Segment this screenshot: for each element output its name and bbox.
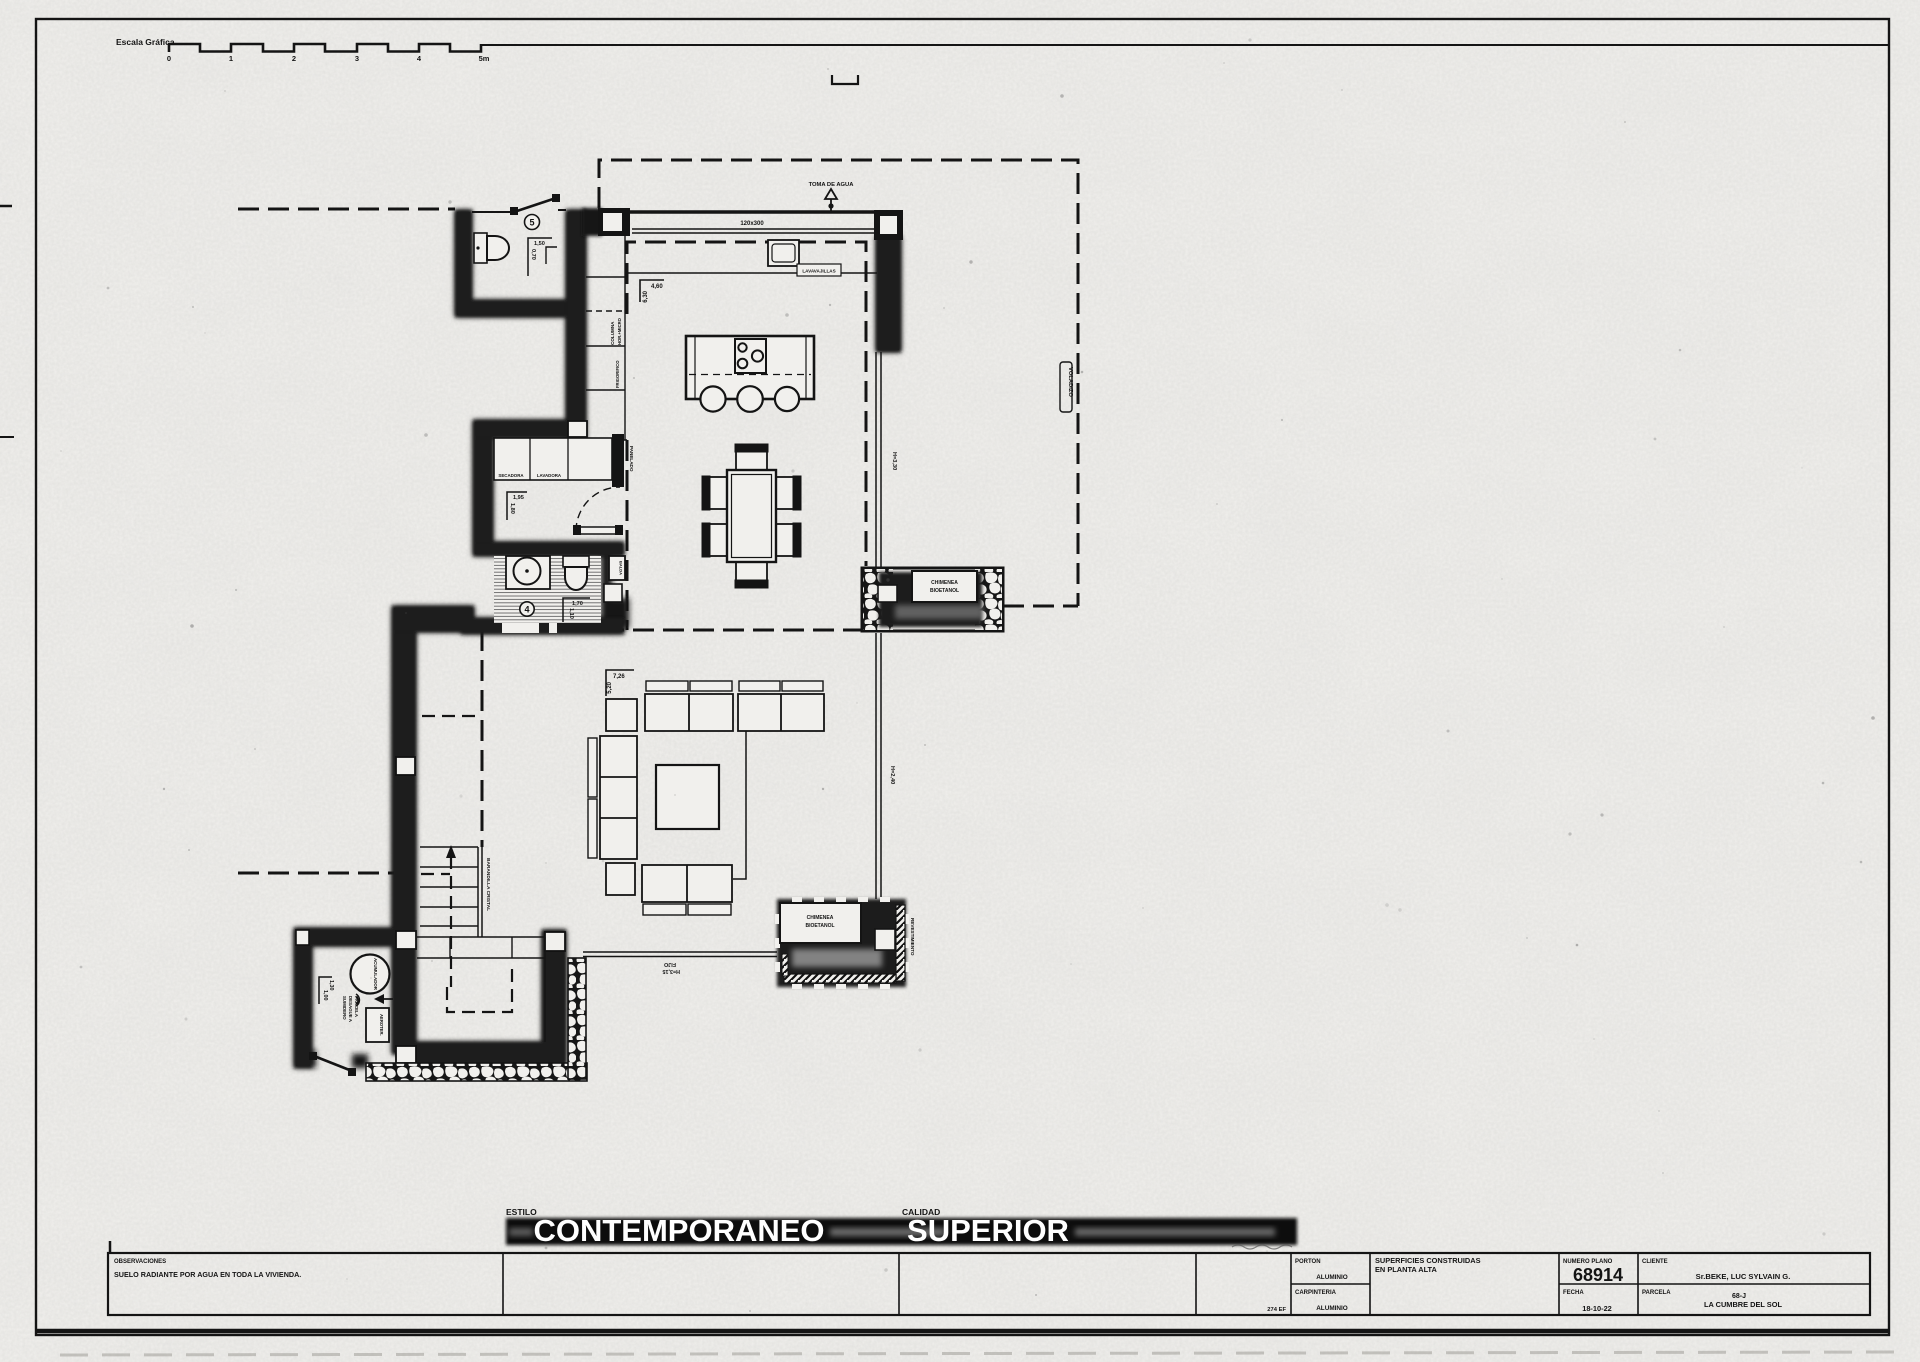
svg-text:H=3,30: H=3,30 <box>891 452 897 470</box>
svg-text:4,60: 4,60 <box>651 284 663 290</box>
svg-text:OBSERVACIONES: OBSERVACIONES <box>114 1259 166 1265</box>
svg-text:1,95: 1,95 <box>513 495 524 501</box>
svg-text:LA CUMBRE DEL SOL: LA CUMBRE DEL SOL <box>1704 1300 1782 1309</box>
svg-text:VOLADIZO: VOLADIZO <box>1067 367 1073 397</box>
svg-text:SECADORA: SECADORA <box>498 473 524 478</box>
svg-text:CLIENTE: CLIENTE <box>1642 1259 1668 1265</box>
svg-text:1,80: 1,80 <box>509 503 515 514</box>
svg-text:CHIMENEA: CHIMENEA <box>931 580 958 586</box>
svg-text:3: 3 <box>355 54 359 63</box>
svg-text:H=3,15: H=3,15 <box>662 968 680 974</box>
svg-text:COLUMNA: COLUMNA <box>610 321 615 345</box>
svg-text:DESAGUE A: DESAGUE A <box>348 996 353 1023</box>
svg-text:5: 5 <box>529 218 534 228</box>
svg-text:LAVADORA: LAVADORA <box>537 473 562 478</box>
svg-text:68-J: 68-J <box>1732 1293 1746 1300</box>
svg-text:CONTEMPORANEO: CONTEMPORANEO <box>533 1213 824 1248</box>
svg-text:1,10: 1,10 <box>568 608 574 619</box>
svg-text:120x300: 120x300 <box>740 221 764 227</box>
svg-text:1,00: 1,00 <box>322 990 328 1001</box>
svg-text:LAVAVAJILLAS: LAVAVAJILLAS <box>802 269 835 274</box>
svg-text:SUPERIOR: SUPERIOR <box>907 1213 1069 1248</box>
svg-text:BARANDILLA CRISTAL: BARANDILLA CRISTAL <box>485 858 491 911</box>
svg-text:BIOETANOL: BIOETANOL <box>930 588 959 594</box>
svg-text:7,26: 7,26 <box>613 674 625 680</box>
svg-text:1,50: 1,50 <box>534 241 545 247</box>
svg-text:EN PLANTA ALTA: EN PLANTA ALTA <box>1375 1265 1438 1274</box>
svg-text:5,20: 5,20 <box>607 681 613 693</box>
svg-text:274 EF: 274 EF <box>1267 1307 1286 1313</box>
svg-text:ESTILO: ESTILO <box>506 1207 537 1217</box>
svg-text:PANELADO: PANELADO <box>629 446 634 472</box>
svg-text:2: 2 <box>292 54 296 63</box>
svg-text:FRIGORIFICO: FRIGORIFICO <box>615 360 620 388</box>
svg-text:68914: 68914 <box>1573 1265 1623 1285</box>
svg-text:ACUMULADOR: ACUMULADOR <box>373 958 378 991</box>
svg-text:1,70: 1,70 <box>572 601 583 607</box>
svg-text:ALUMINIO: ALUMINIO <box>1316 1274 1348 1281</box>
svg-text:SUMIDERO: SUMIDERO <box>342 996 347 1020</box>
svg-text:6,30: 6,30 <box>643 290 649 302</box>
svg-text:H=2,40: H=2,40 <box>889 766 895 784</box>
svg-text:SUELO RADIANTE POR AGUA EN TOD: SUELO RADIANTE POR AGUA EN TODA LA VIVIE… <box>114 1270 301 1279</box>
svg-text:HOR.+MICRO: HOR.+MICRO <box>617 317 622 345</box>
svg-text:CARPINTERIA: CARPINTERIA <box>1295 1290 1337 1296</box>
svg-text:ALUMINIO: ALUMINIO <box>1316 1305 1348 1312</box>
svg-text:Sr.BEKE, LUC SYLVAIN G.: Sr.BEKE, LUC SYLVAIN G. <box>1696 1272 1791 1281</box>
svg-text:TOMA DE AGUA: TOMA DE AGUA <box>809 182 855 188</box>
svg-text:18-10-22: 18-10-22 <box>1582 1304 1612 1313</box>
svg-text:AEROTER.: AEROTER. <box>379 1014 384 1036</box>
svg-text:5m: 5m <box>479 54 490 63</box>
svg-text:CHIMENEA: CHIMENEA <box>807 915 834 921</box>
svg-text:BALDA: BALDA <box>619 561 624 575</box>
svg-text:PORTON: PORTON <box>1295 1259 1321 1265</box>
svg-text:4: 4 <box>524 605 529 615</box>
svg-text:FIJO: FIJO <box>664 961 676 967</box>
svg-text:REVESTIMIENTO: REVESTIMIENTO <box>910 918 915 956</box>
svg-text:0: 0 <box>167 54 171 63</box>
svg-text:SUPERFICIES CONSTRUIDAS: SUPERFICIES CONSTRUIDAS <box>1375 1256 1481 1265</box>
svg-text:Escala Gráfica: Escala Gráfica <box>116 37 175 47</box>
svg-text:FECHA: FECHA <box>1563 1290 1584 1296</box>
svg-text:1,30: 1,30 <box>328 980 334 991</box>
svg-text:PARCELA: PARCELA <box>1642 1290 1671 1296</box>
svg-text:BIOETANOL: BIOETANOL <box>805 923 834 929</box>
svg-text:0,70: 0,70 <box>530 249 536 260</box>
svg-text:1: 1 <box>229 54 233 63</box>
